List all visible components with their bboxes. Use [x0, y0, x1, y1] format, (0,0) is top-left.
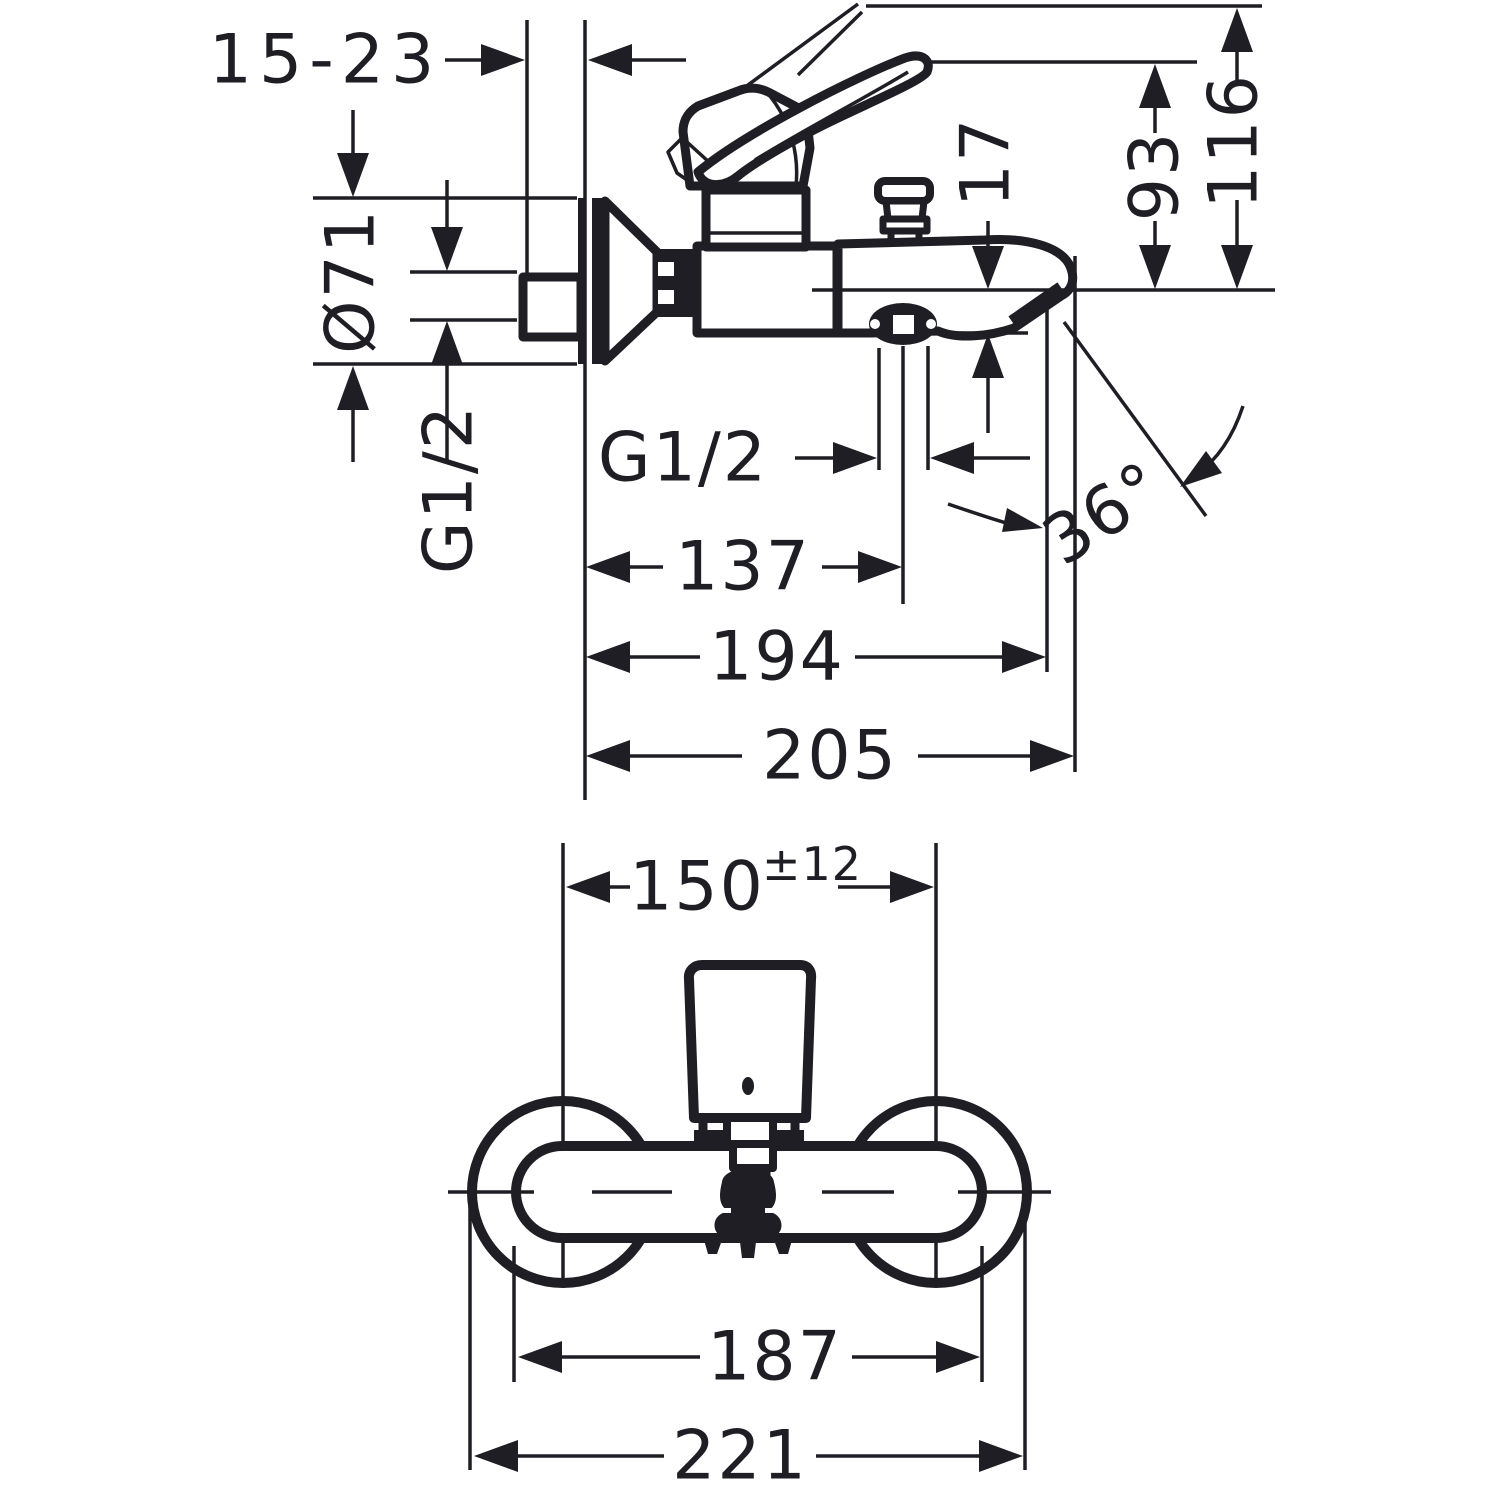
- arrowhead: [1139, 64, 1171, 108]
- dim-reach-137: 137: [586, 528, 902, 607]
- dim-label-wall-distance: 15-23: [209, 21, 442, 100]
- arrowhead: [586, 740, 630, 772]
- arrowhead: [588, 44, 632, 76]
- dim-label-spout-lip: 17: [947, 117, 1026, 208]
- dim-label-reach-205: 205: [762, 717, 898, 796]
- arrowhead: [474, 1440, 518, 1472]
- wall-nipple: [523, 277, 581, 337]
- arrowhead: [566, 871, 610, 903]
- arrowhead: [930, 442, 974, 474]
- drawing-page: 15-23 Ø71 G1/2: [0, 0, 1500, 1500]
- dim-label-height-116: 116: [1195, 73, 1274, 209]
- handle-dot: [742, 1077, 754, 1095]
- arrowhead: [890, 871, 934, 903]
- outlet-highlight: [870, 319, 880, 329]
- connection-nut: [653, 249, 697, 317]
- phantom-handle-line: [798, 12, 862, 75]
- aerator-body: [715, 1169, 782, 1243]
- dim-label-spout-angle: 36°: [1029, 446, 1178, 581]
- arrowhead: [431, 227, 463, 271]
- arrowhead: [979, 1440, 1023, 1472]
- dim-label-reach-194: 194: [709, 618, 845, 697]
- dim-height-93: 93: [1116, 64, 1195, 289]
- faucet-front-drawing: [448, 965, 1051, 1283]
- nut-notch: [658, 262, 674, 276]
- arrowhead: [337, 366, 369, 410]
- aerator-foot: [704, 1240, 722, 1254]
- dim-label-connection-centers: 150: [629, 848, 765, 927]
- arrowhead: [337, 153, 369, 197]
- dim-body-width: 187: [514, 1246, 982, 1397]
- handle-front: [689, 965, 811, 1118]
- front-view: 150 ±12: [448, 837, 1051, 1496]
- arrowhead: [1139, 245, 1171, 289]
- dim-label-connection-tolerance: ±12: [762, 837, 862, 891]
- phantom-handle-line: [733, 4, 858, 96]
- arrowhead: [972, 334, 1004, 378]
- aerator-slit: [765, 1208, 777, 1213]
- arrowhead: [586, 551, 630, 583]
- escutcheon-cone: [605, 201, 657, 361]
- diverter-knob: [878, 181, 930, 244]
- leader-arc: [948, 504, 1010, 524]
- arrowhead: [1002, 641, 1046, 673]
- dim-label-wall-thread: G1/2: [410, 404, 489, 574]
- outlet-highlight: [926, 319, 936, 329]
- technical-drawing-canvas: 15-23 Ø71 G1/2: [0, 0, 1500, 1500]
- dim-label-body-width: 187: [707, 1318, 843, 1397]
- dim-label-escutcheon-diameter: Ø71: [312, 208, 391, 354]
- arrowhead: [518, 1341, 562, 1373]
- dim-height-116: 116: [1195, 8, 1274, 289]
- arrowhead: [936, 1341, 980, 1373]
- outlet-opening: [893, 315, 914, 334]
- dim-wall-thread: G1/2: [410, 180, 518, 574]
- aerator-slit: [719, 1208, 731, 1213]
- dim-wall-distance: 15-23: [209, 21, 686, 100]
- dim-label-overall-width: 221: [672, 1417, 808, 1496]
- aerator-foot: [774, 1240, 792, 1254]
- dim-reach-194: 194: [586, 300, 1047, 697]
- arrowhead: [431, 321, 463, 365]
- side-view: 15-23 Ø71 G1/2: [209, 4, 1275, 800]
- arrowhead: [1221, 8, 1253, 52]
- arrowhead: [1030, 740, 1074, 772]
- cartridge-housing: [706, 190, 806, 247]
- arrowhead: [858, 551, 902, 583]
- arrowhead: [1221, 245, 1253, 289]
- nut-notch: [658, 290, 674, 304]
- dim-label-reach-137: 137: [675, 528, 811, 607]
- shower-outlet: [869, 303, 937, 345]
- dim-label-height-93: 93: [1116, 131, 1195, 222]
- stem-step: [733, 1144, 773, 1168]
- arrowhead: [481, 44, 525, 76]
- aerator-foot: [740, 1242, 756, 1258]
- arrowhead: [833, 442, 877, 474]
- arrowhead: [586, 641, 630, 673]
- dim-label-outlet-thread: G1/2: [598, 419, 768, 498]
